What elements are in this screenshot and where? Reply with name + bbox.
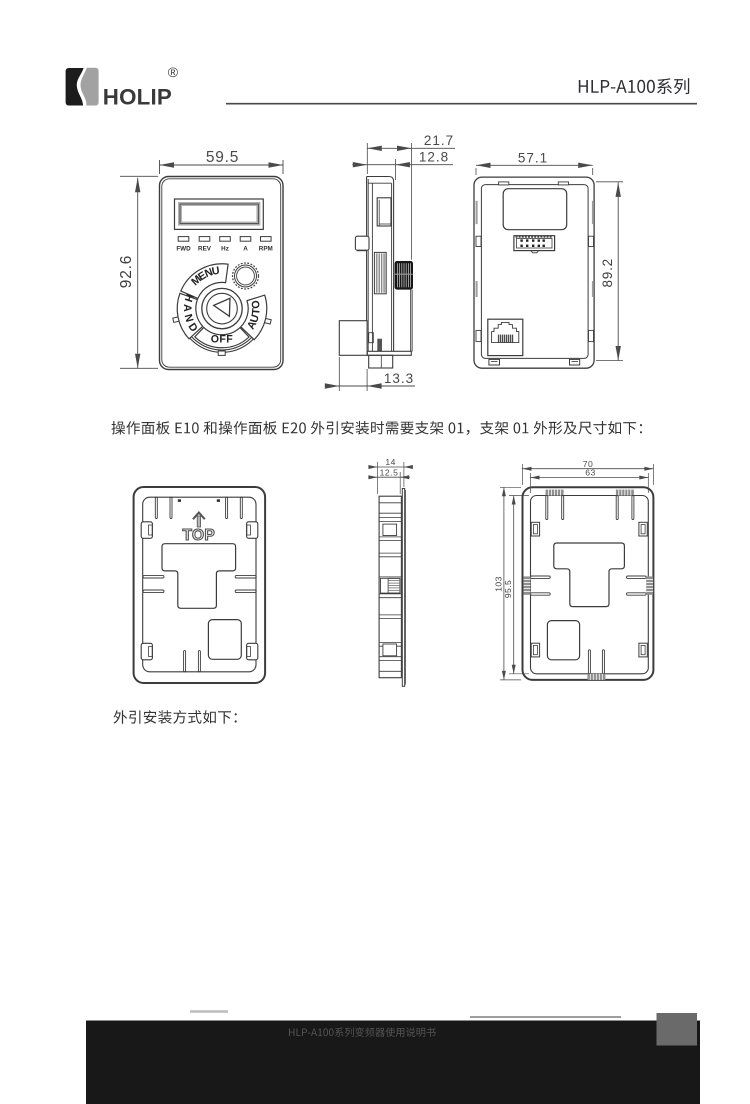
svg-text:89.2: 89.2 xyxy=(600,258,615,287)
svg-text:21.7: 21.7 xyxy=(424,133,454,148)
svg-text:A: A xyxy=(243,246,248,253)
svg-text:12.5: 12.5 xyxy=(380,467,399,477)
svg-text:12.8: 12.8 xyxy=(419,150,449,165)
svg-text:FWD: FWD xyxy=(176,246,191,253)
svg-text:95.5: 95.5 xyxy=(503,580,513,598)
svg-text:RPM: RPM xyxy=(259,246,273,253)
svg-text:59.5: 59.5 xyxy=(206,149,239,166)
svg-text:63: 63 xyxy=(585,468,596,478)
svg-text:14: 14 xyxy=(385,457,396,467)
svg-text:57.1: 57.1 xyxy=(518,150,548,165)
svg-text:OFF: OFF xyxy=(211,333,234,345)
svg-text:TOP: TOP xyxy=(183,527,215,544)
svg-text:O: O xyxy=(250,299,263,309)
svg-text:®: ® xyxy=(168,64,179,80)
svg-text:13.3: 13.3 xyxy=(384,371,414,386)
svg-text:Hz: Hz xyxy=(221,246,229,253)
svg-text:92.6: 92.6 xyxy=(118,255,135,288)
svg-text:HOLIP: HOLIP xyxy=(103,84,172,109)
svg-text:A: A xyxy=(181,304,193,312)
svg-text:103: 103 xyxy=(493,576,503,592)
svg-text:REV: REV xyxy=(198,246,212,253)
